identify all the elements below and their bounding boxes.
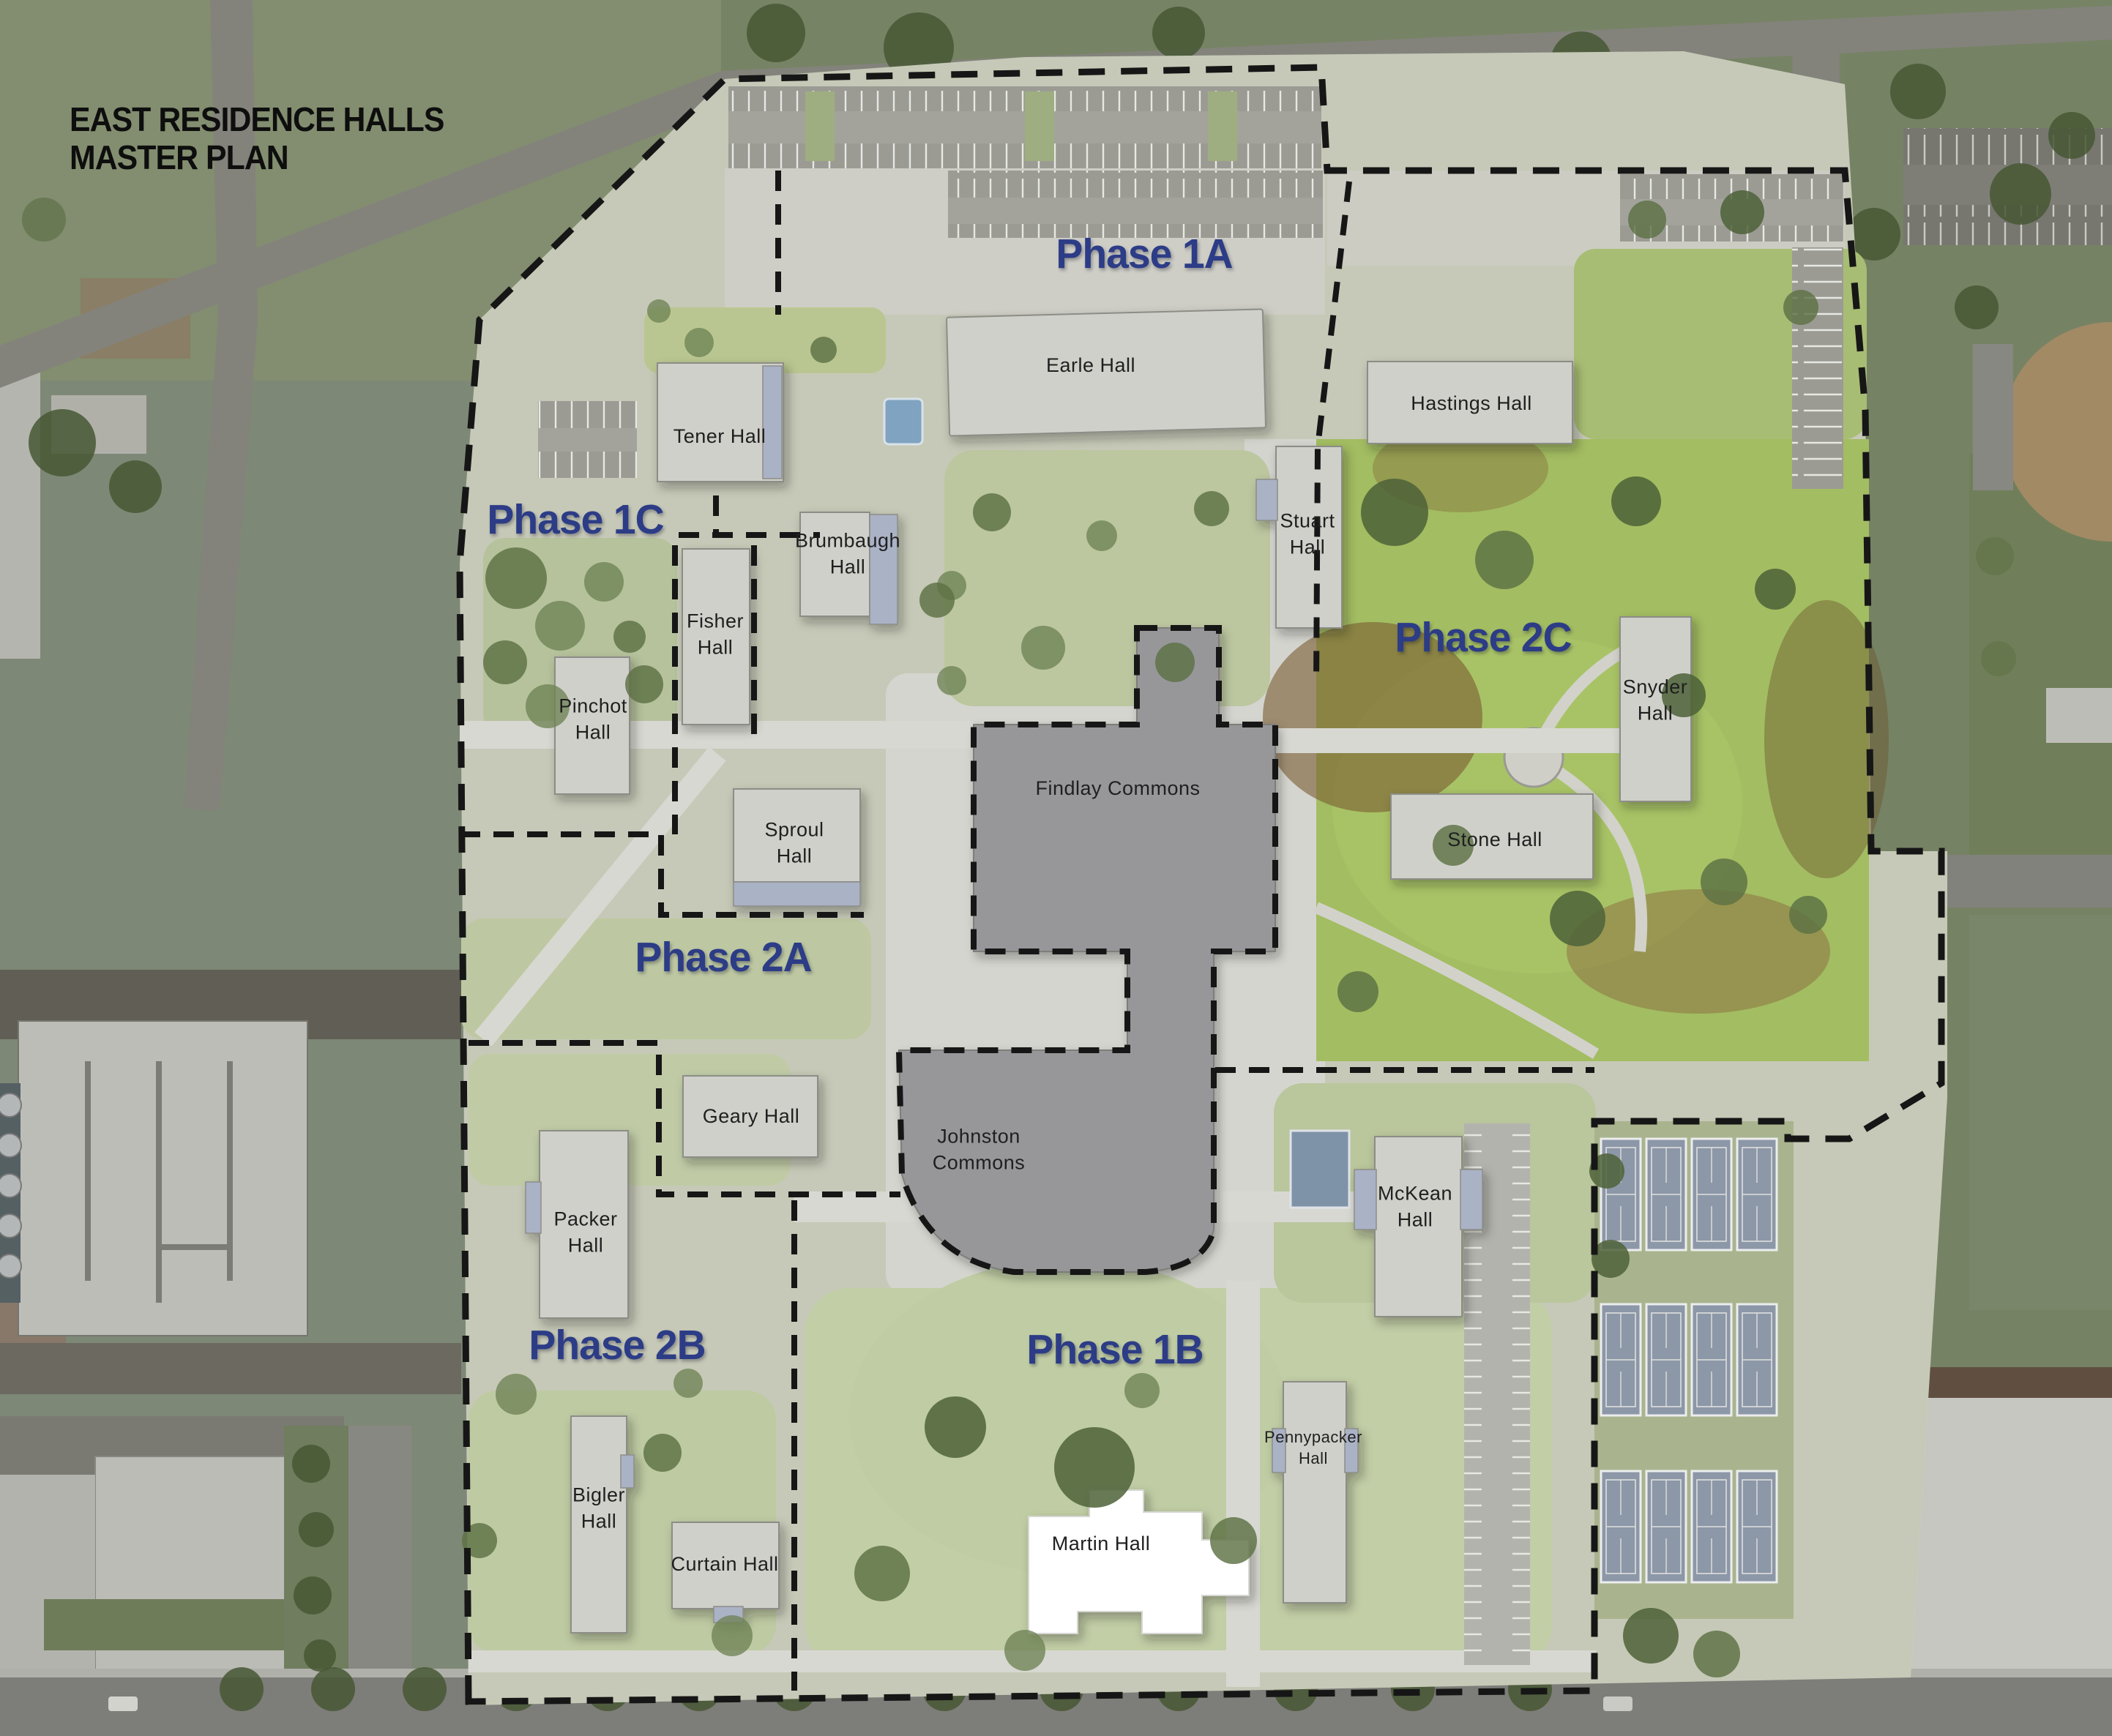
map-title-line1: EAST RESIDENCE HALLS (70, 101, 444, 139)
building-pennypacker-hall (1283, 1382, 1346, 1603)
phase-label-1b: Phase 1B (1026, 1325, 1203, 1374)
building-label-packer: Packer Hall (553, 1206, 617, 1258)
building-label-earle: Earle Hall (1046, 353, 1135, 379)
building-label-findlay: Findlay Commons (1035, 776, 1200, 802)
building-label-pennypacker: Pennypacker Hall (1264, 1426, 1362, 1469)
building-label-snyder: Snyder Hall (1623, 674, 1688, 726)
building-label-pinchot: Pinchot Hall (559, 693, 627, 745)
pool-court (884, 399, 922, 444)
east-residence-halls-master-plan: EAST RESIDENCE HALLS MASTER PLAN Phase 1… (0, 0, 2112, 1736)
building-label-curtain: Curtain Hall (671, 1552, 778, 1578)
map-title-line2: MASTER PLAN (70, 139, 444, 177)
phase-label-1c: Phase 1C (487, 495, 663, 544)
building-label-sproul: Sproul Hall (764, 817, 824, 869)
building-label-johnston: Johnston Commons (933, 1123, 1026, 1175)
building-label-bigler: Bigler Hall (572, 1482, 625, 1534)
building-label-martin: Martin Hall (1052, 1531, 1151, 1557)
phase-label-2a: Phase 2A (635, 933, 811, 981)
building-label-geary: Geary Hall (703, 1104, 800, 1130)
basketball-court (1291, 1131, 1349, 1208)
phase-label-1a: Phase 1A (1056, 230, 1232, 278)
building-label-tener: Tener Hall (673, 424, 766, 450)
building-label-mckean: McKean Hall (1378, 1181, 1452, 1232)
phase-label-2b: Phase 2B (529, 1321, 705, 1369)
building-label-hastings: Hastings Hall (1411, 391, 1532, 417)
building-label-fisher: Fisher Hall (687, 608, 744, 660)
map-title: EAST RESIDENCE HALLS MASTER PLAN (70, 101, 444, 176)
phase-label-2c: Phase 2C (1395, 613, 1571, 662)
building-label-stuart: Stuart Hall (1280, 508, 1335, 560)
building-label-stone: Stone Hall (1447, 827, 1542, 853)
building-label-brumbaugh: Brumbaugh Hall (795, 528, 900, 580)
tennis-courts (1594, 1121, 1794, 1619)
